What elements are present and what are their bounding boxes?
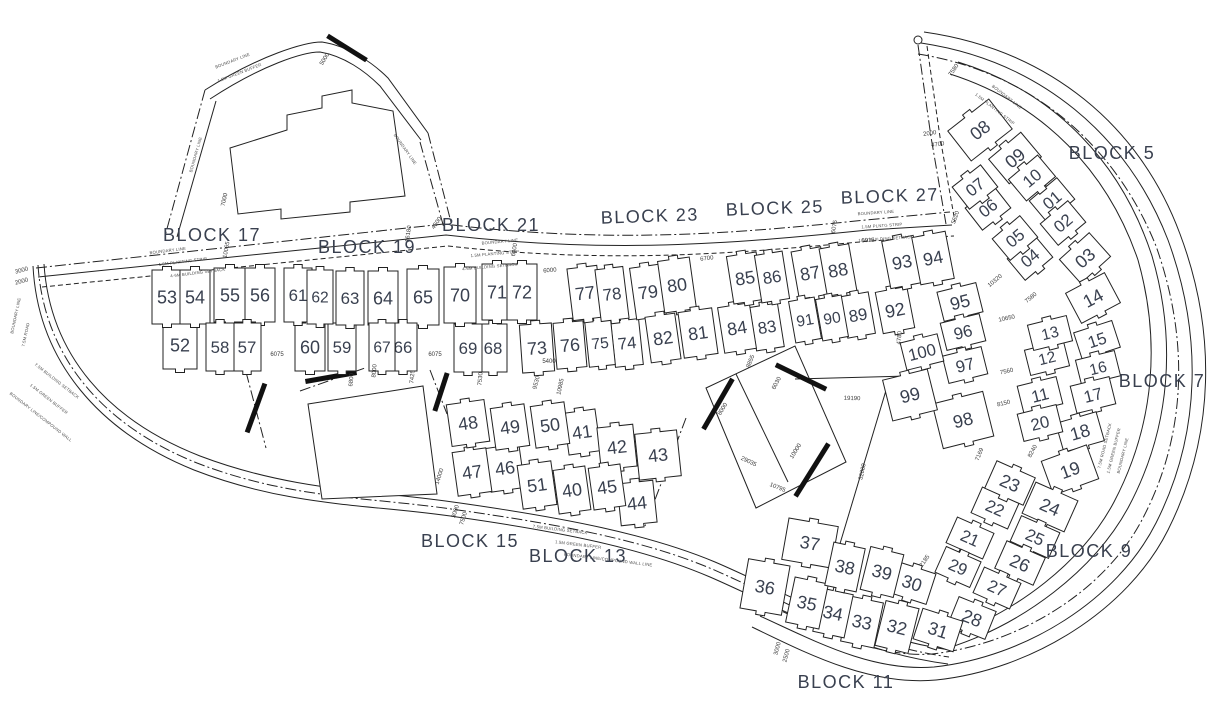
plot-68: 68 bbox=[479, 321, 507, 376]
plot-number-88: 88 bbox=[826, 259, 849, 282]
dimension-label: 2000 bbox=[15, 277, 30, 286]
open-lot-rectangle bbox=[308, 386, 437, 499]
dimension-label: 4780 bbox=[896, 330, 903, 344]
plot-number-91: 91 bbox=[795, 311, 815, 331]
plot-number-68: 68 bbox=[484, 339, 503, 358]
road-annotation: BOUNDARY LINE bbox=[149, 246, 186, 255]
plot-56: 56 bbox=[245, 265, 275, 326]
plot-48: 48 bbox=[446, 396, 490, 450]
dimension-label: 32000 bbox=[858, 462, 867, 480]
block-label-9: BLOCK 9 bbox=[1046, 541, 1133, 561]
plot-number-80: 80 bbox=[666, 274, 689, 297]
plot-76: 76 bbox=[553, 317, 588, 372]
plot-number-67: 67 bbox=[373, 339, 390, 356]
plot-45: 45 bbox=[588, 461, 627, 514]
block-label-12: BLOCK 15 bbox=[421, 531, 519, 551]
dimension-label: 7000 bbox=[221, 192, 230, 207]
road-annotation: BOUNDARY LINE bbox=[9, 297, 22, 334]
plot-number-45: 45 bbox=[596, 476, 619, 499]
parcel-right-dashed-2 bbox=[420, 142, 444, 228]
block-label-11: BLOCK 13 bbox=[529, 546, 627, 566]
building-footprint bbox=[230, 90, 405, 219]
plot-number-36: 36 bbox=[753, 576, 776, 599]
dimension-label: 2000 bbox=[923, 130, 938, 138]
plot-number-90: 90 bbox=[822, 309, 842, 329]
plot-number-40: 40 bbox=[561, 479, 584, 502]
retaining-wall-bar bbox=[326, 34, 368, 63]
plot-number-41: 41 bbox=[571, 421, 594, 444]
plot-number-69: 69 bbox=[459, 339, 478, 358]
plot-number-44: 44 bbox=[626, 492, 648, 514]
road-annotation: 7.5M ROAD bbox=[21, 322, 31, 347]
plot-number-85: 85 bbox=[734, 267, 757, 290]
dimension-label: 3000 bbox=[773, 641, 782, 656]
plot-number-79: 79 bbox=[637, 281, 660, 304]
road-annotation: 1.5M PLANTING STRIP bbox=[158, 256, 207, 267]
block-label-5: BLOCK 25 bbox=[725, 196, 824, 219]
plot-55: 55 bbox=[214, 265, 246, 326]
plot-82: 82 bbox=[644, 310, 681, 367]
plot-number-81: 81 bbox=[687, 322, 710, 345]
dimension-label: 6075 bbox=[428, 352, 442, 358]
plot-number-59: 59 bbox=[333, 338, 352, 357]
plot-47: 47 bbox=[452, 444, 493, 499]
plot-58: 58 bbox=[206, 320, 234, 375]
plot-number-77: 77 bbox=[574, 282, 596, 304]
plot-number-62: 62 bbox=[311, 289, 328, 306]
plot-98: 98 bbox=[931, 388, 994, 452]
block-label-2: BLOCK 19 bbox=[318, 237, 416, 257]
plot-number-51: 51 bbox=[526, 474, 549, 497]
plot-number-38: 38 bbox=[833, 555, 857, 579]
dimension-label: 3000 bbox=[15, 266, 30, 275]
plot-number-48: 48 bbox=[457, 412, 480, 435]
plot-62: 62 bbox=[307, 267, 333, 328]
block-label-8: BLOCK 7 bbox=[1119, 371, 1206, 391]
dimension-label: 7425 bbox=[409, 369, 416, 383]
plot-43: 43 bbox=[634, 426, 681, 483]
dimension-label: 8150 bbox=[997, 399, 1012, 408]
dimension-label: 7580 bbox=[1024, 291, 1039, 305]
dimension-label: 6000 bbox=[543, 267, 557, 274]
plot-number-65: 65 bbox=[413, 287, 433, 307]
plot-number-60: 60 bbox=[300, 337, 320, 357]
dimension-label: 10985 bbox=[556, 377, 565, 395]
plot-number-37: 37 bbox=[798, 532, 821, 555]
dimension-label: 5520 bbox=[951, 210, 961, 225]
plot-number-63: 63 bbox=[341, 289, 360, 308]
plot-number-84: 84 bbox=[726, 317, 749, 340]
plot-number-56: 56 bbox=[250, 285, 270, 305]
plot-number-76: 76 bbox=[559, 334, 581, 356]
dimension-label: 9530 bbox=[532, 375, 541, 390]
road-annotation: BOUNDARY LINE/COMPOUND WALL bbox=[9, 391, 74, 443]
plot-number-52: 52 bbox=[170, 335, 190, 355]
survey-marker bbox=[914, 36, 922, 44]
plot-17: 17 bbox=[1069, 373, 1116, 417]
block-label-7: BLOCK 5 bbox=[1069, 143, 1156, 163]
plot-number-83: 83 bbox=[756, 317, 777, 339]
plot-73: 73 bbox=[519, 319, 555, 376]
plot-99: 99 bbox=[882, 366, 938, 425]
plot-number-93: 93 bbox=[890, 251, 913, 274]
dimension-label: 6075 bbox=[270, 352, 284, 358]
plot-number-74: 74 bbox=[617, 333, 638, 354]
plot-number-58: 58 bbox=[211, 338, 230, 357]
plot-number-42: 42 bbox=[606, 436, 628, 458]
plot-number-53: 53 bbox=[157, 287, 177, 307]
plot-number-82: 82 bbox=[652, 327, 675, 350]
plot-number-35: 35 bbox=[795, 591, 819, 615]
plot-number-73: 73 bbox=[526, 338, 547, 359]
plot-number-70: 70 bbox=[450, 285, 470, 305]
plot-number-34: 34 bbox=[821, 601, 845, 625]
plot-number-86: 86 bbox=[761, 267, 782, 289]
plot-number-47: 47 bbox=[461, 461, 484, 484]
block-label-4: BLOCK 23 bbox=[600, 204, 699, 227]
plot-72: 72 bbox=[507, 261, 537, 324]
plot-number-55: 55 bbox=[220, 285, 240, 305]
site-plan-canvas: 0102030405060708091011121314151617181920… bbox=[0, 0, 1208, 721]
plot-70: 70 bbox=[444, 264, 476, 327]
plot-number-61: 61 bbox=[289, 286, 308, 305]
road-annotation: BOUNDARY LINE bbox=[857, 209, 894, 217]
dimension-label: 6800 bbox=[348, 372, 355, 386]
parcel-left-boundary bbox=[165, 90, 205, 236]
dimension-label: 8240 bbox=[1027, 444, 1039, 459]
plot-number-43: 43 bbox=[647, 444, 669, 466]
plot-14: 14 bbox=[1064, 270, 1122, 327]
plot-92: 92 bbox=[875, 283, 916, 337]
plot-number-49: 49 bbox=[499, 416, 522, 439]
plot-number-89: 89 bbox=[847, 304, 869, 326]
block-label-10: BLOCK 11 bbox=[798, 672, 895, 692]
dimension-label: 2500 bbox=[782, 648, 791, 663]
plot-40: 40 bbox=[553, 463, 592, 518]
plot-number-66: 66 bbox=[394, 338, 413, 357]
retaining-wall-bar bbox=[245, 383, 267, 434]
block-label-6: BLOCK 27 bbox=[840, 184, 939, 207]
plot-number-46: 46 bbox=[494, 457, 517, 480]
plot-69: 69 bbox=[454, 321, 482, 376]
dimension-label: 6075 bbox=[831, 219, 839, 234]
dimension-label: 5400 bbox=[542, 359, 556, 365]
dimension-label: 3000 bbox=[451, 504, 461, 519]
plot-100: 100 bbox=[899, 330, 944, 373]
plot-number-94: 94 bbox=[921, 247, 944, 270]
plot-number-50: 50 bbox=[539, 414, 562, 437]
plot-63: 63 bbox=[336, 268, 364, 329]
plot-number-54: 54 bbox=[185, 287, 205, 307]
dimension-label: 4700 bbox=[931, 141, 946, 149]
plot-number-33: 33 bbox=[850, 610, 874, 634]
plot-13: 13 bbox=[1027, 312, 1074, 354]
plot-number-57: 57 bbox=[238, 338, 257, 357]
dimension-label: 7560 bbox=[1000, 368, 1015, 377]
block-label-1: BLOCK 17 bbox=[163, 225, 261, 245]
dimension-label: 6700 bbox=[700, 255, 715, 263]
plot-number-71: 71 bbox=[487, 282, 507, 302]
plot-50: 50 bbox=[530, 398, 570, 451]
plot-57: 57 bbox=[233, 320, 261, 375]
plot-65: 65 bbox=[407, 266, 439, 329]
dimension-label: 2185 bbox=[919, 554, 932, 569]
dimension-label: 14000 bbox=[435, 467, 446, 485]
plot-36: 36 bbox=[739, 555, 790, 618]
plot-number-78: 78 bbox=[602, 284, 623, 305]
plot-number-72: 72 bbox=[512, 282, 532, 302]
dimension-label: 7580 bbox=[948, 63, 961, 78]
plot-number-64: 64 bbox=[373, 288, 393, 308]
dimension-label: 10650 bbox=[998, 314, 1016, 323]
plot-81: 81 bbox=[677, 304, 718, 361]
block-label-3: BLOCK 21 bbox=[442, 215, 540, 235]
dimension-label: 8000 bbox=[371, 363, 378, 377]
dimension-label: 19190 bbox=[844, 396, 862, 403]
dimension-label: 7530 bbox=[477, 371, 484, 385]
plot-number-92: 92 bbox=[883, 299, 906, 322]
dimension-label: 10320 bbox=[987, 273, 1004, 289]
plot-51: 51 bbox=[517, 457, 558, 512]
dimension-label: 7169 bbox=[975, 447, 986, 462]
survey-point-circle bbox=[914, 36, 922, 44]
plot-number-87: 87 bbox=[798, 262, 821, 285]
plot-49: 49 bbox=[490, 400, 530, 453]
plot-number-75: 75 bbox=[591, 335, 610, 354]
